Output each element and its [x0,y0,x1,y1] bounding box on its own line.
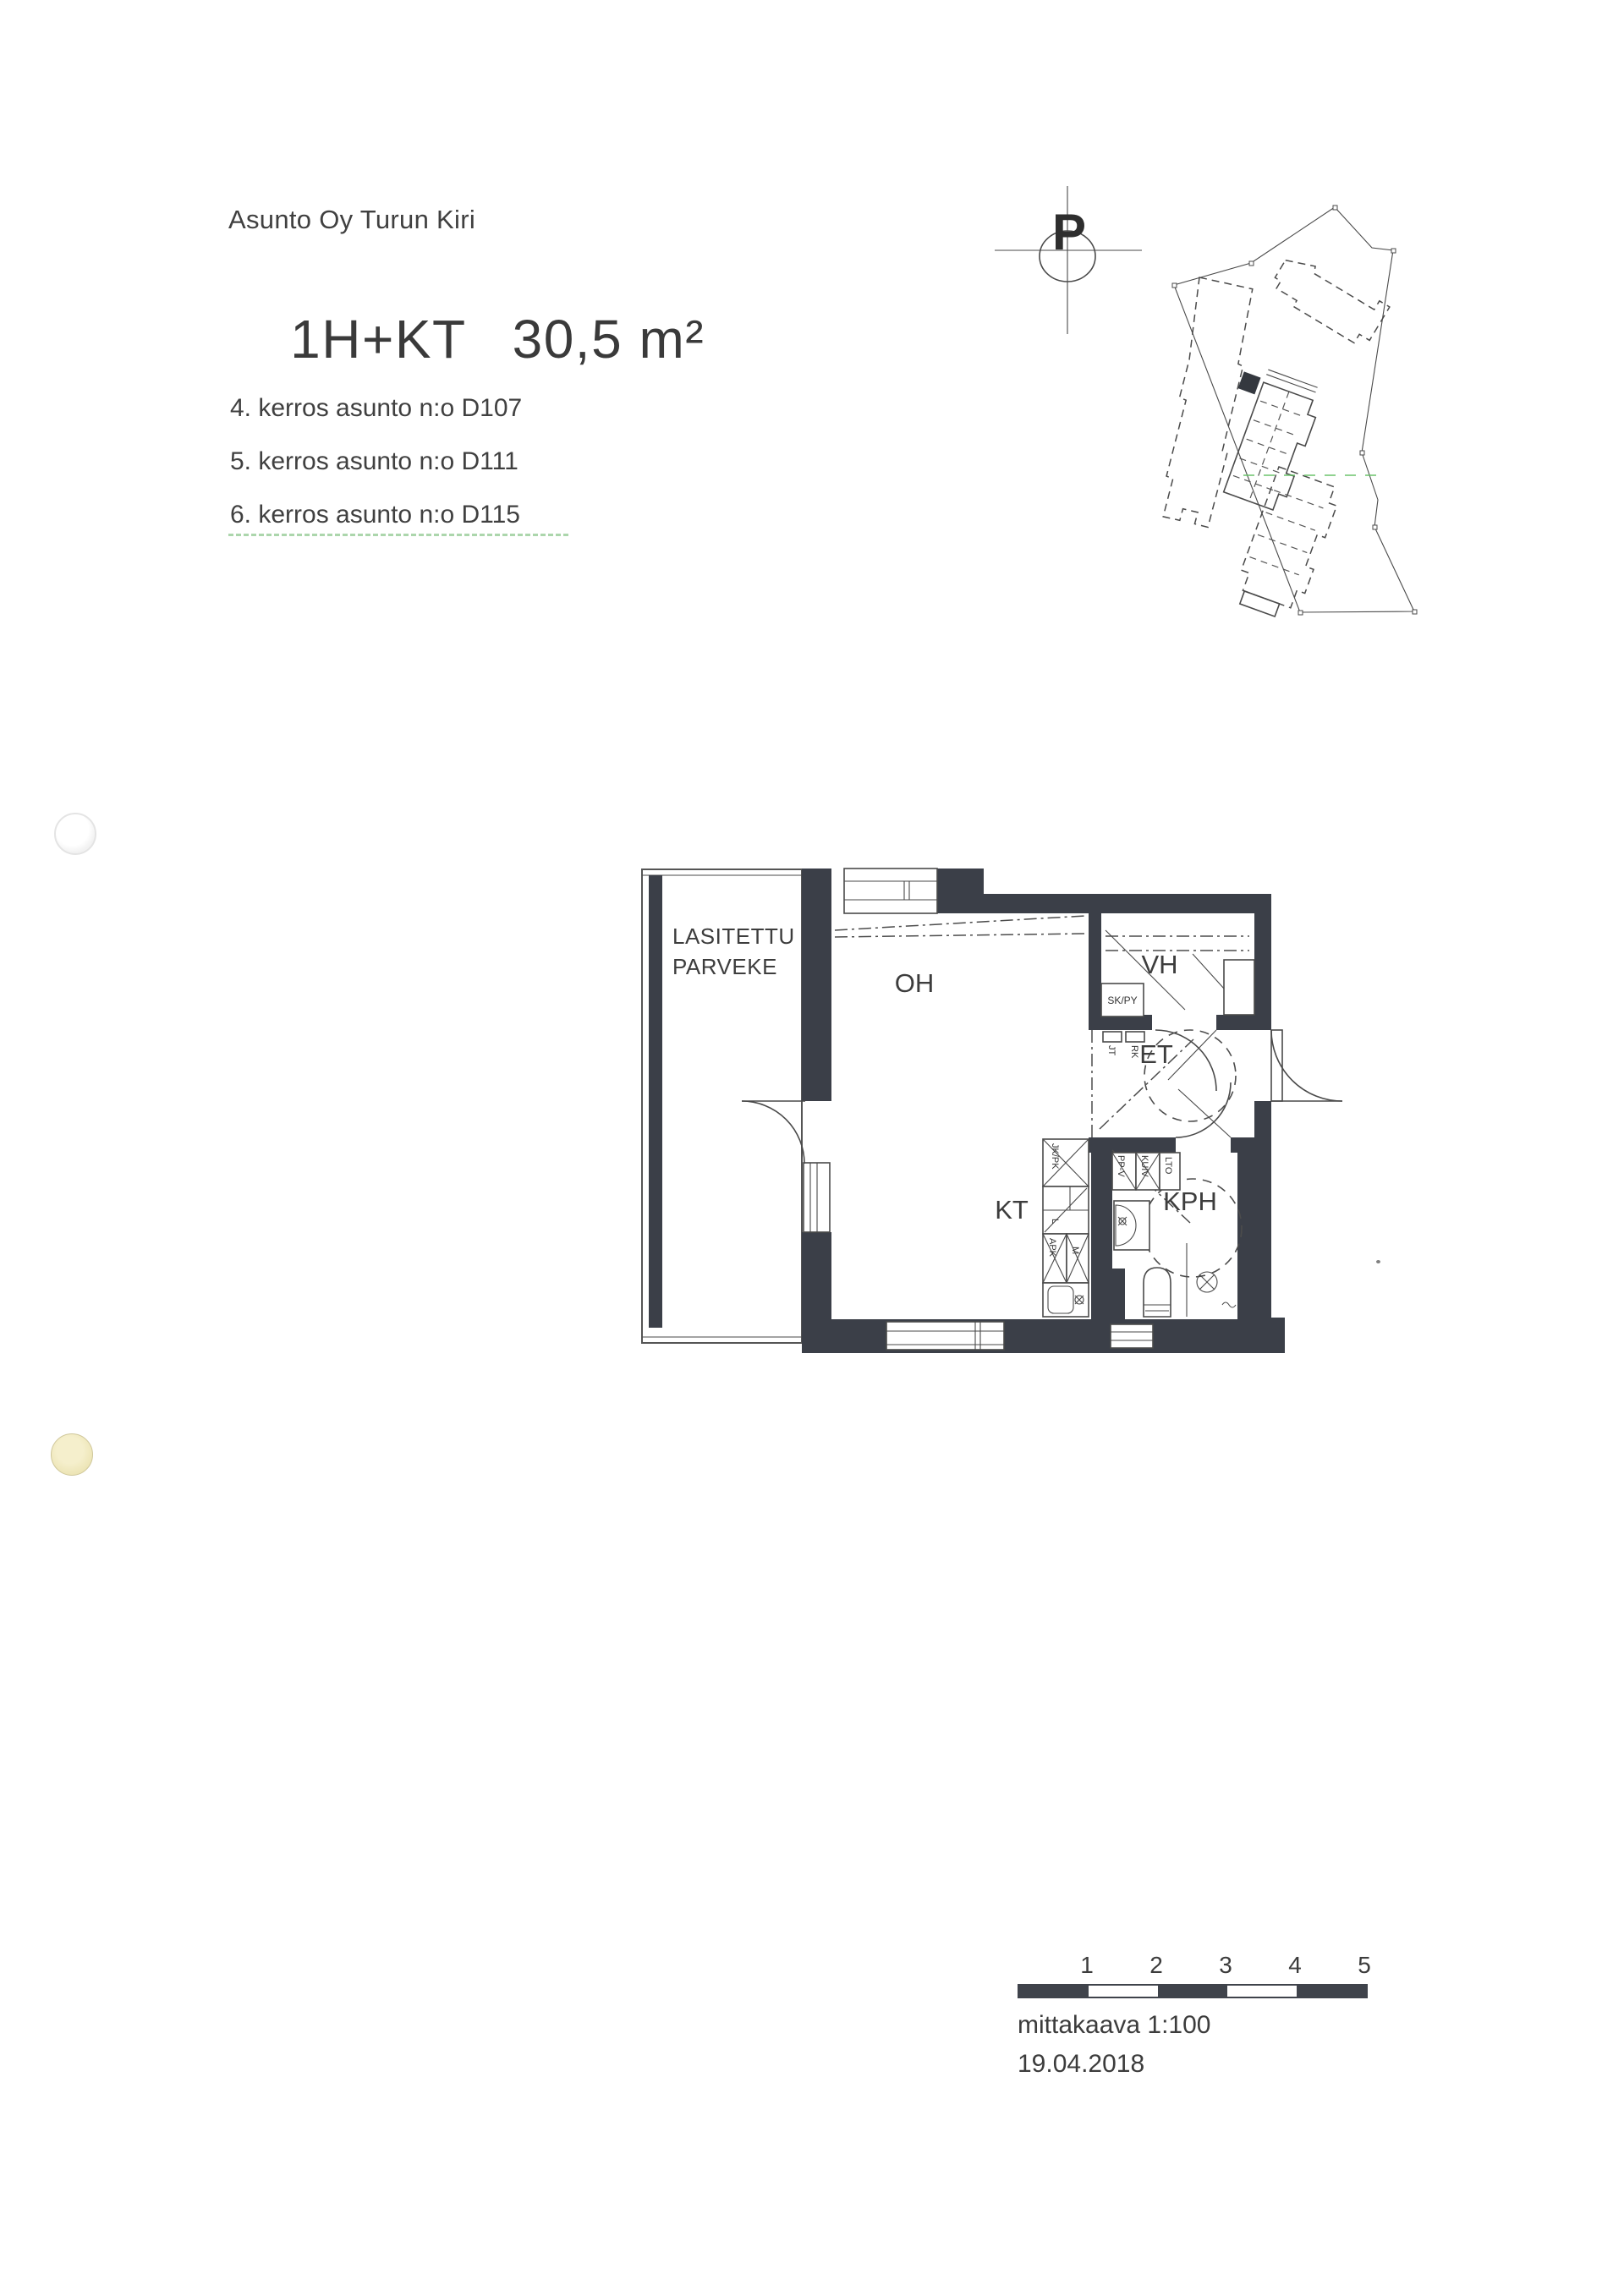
jt-label: JT [1106,1045,1116,1056]
room-label-balcony-1: LASITETTU [672,923,795,949]
kitchen-sink-icon [1043,1283,1089,1317]
closet-wardrobe-box [1224,960,1254,1015]
plot-boundary [1172,205,1417,615]
scan-speck [1376,1260,1380,1263]
shower-icon [1187,1243,1236,1317]
floor-item-1: 4. kerros asunto n:o D107 [230,394,522,423]
toilet-icon [1144,1268,1171,1317]
neighbor-building-dashed-upper [1267,249,1390,349]
balcony-door [742,1101,805,1164]
bathroom-sink-icon [1114,1201,1149,1250]
room-label-bathroom: KPH [1163,1186,1217,1216]
kitchen-appliances: JK/PK L APK M [1043,1139,1089,1317]
scale-bar-segments [1018,1984,1368,1998]
site-plan: P [981,178,1438,702]
dishwasher-label: APK [1047,1238,1057,1258]
scale-tick-4: 4 [1288,1952,1302,1979]
rk-label: RK [1129,1045,1139,1059]
building-lower-dashed [1231,467,1343,623]
scale-tick-5: 5 [1358,1952,1371,1979]
scale-tick-3: 3 [1219,1952,1232,1979]
window-bottom-bathroom [1111,1324,1153,1348]
window-bottom-large [886,1322,1004,1350]
stove-label: L [1050,1219,1060,1224]
scale-tick-2: 2 [1149,1952,1163,1979]
lto-label: LTO [1163,1157,1173,1175]
skpy-label: SK/PY [1107,995,1137,1006]
building-solid-with-unit [1203,362,1325,512]
window-top [844,869,937,913]
utility-cabinets: JT RK [1103,1032,1144,1059]
date-label: 19.04.2018 [1018,2050,1144,2079]
room-label-living: OH [895,968,935,998]
floor-plan: SK/PY JT RK JK/PK L APK M [639,846,1353,1366]
laundry-boxes: PP-V KUIV LTO [1112,1153,1180,1190]
apartment-area: 30,5 m² [513,309,705,370]
scale-bar: 1 2 3 4 5 [1018,1952,1368,2062]
closet-cabinet-skpy: SK/PY [1101,984,1144,1016]
dryer-label: KUIV [1139,1155,1149,1177]
floor-item-2: 5. kerros asunto n:o D111 [230,447,518,476]
floor-item-3: 6. kerros asunto n:o D115 [230,501,520,529]
hole-punch-mark-bottom [51,1433,93,1476]
room-label-closet: VH [1141,950,1177,979]
fridge-label: JK/PK [1050,1143,1060,1170]
room-label-balcony-2: PARVEKE [672,954,777,979]
bathroom-door [1176,1082,1231,1137]
scale-tick-1: 1 [1080,1952,1094,1979]
microwave-label: M [1070,1247,1080,1254]
ceiling-lines [835,916,1249,1223]
scanned-floorplan-page: Asunto Oy Turun Kiri 1H+KT30,5 m² 4. ker… [0,0,1624,2296]
boundary-markers [1172,205,1417,615]
north-label: P [1052,204,1086,260]
scale-label: mittakaava 1:100 [1018,2011,1210,2040]
scan-artifact-green-underline [228,534,568,536]
neighbor-building-dashed-left [1160,277,1253,529]
company-name: Asunto Oy Turun Kiri [228,205,475,235]
room-label-kitchen: KT [995,1195,1029,1225]
room-label-hall: ET [1139,1039,1173,1069]
window-balcony-wall [804,1163,830,1232]
apartment-type: 1H+KT [290,309,466,370]
entry-door [1271,1030,1342,1101]
north-compass-icon: P [995,186,1142,334]
hole-punch-mark-top [54,813,96,855]
washer-label: PP-V [1116,1155,1126,1177]
